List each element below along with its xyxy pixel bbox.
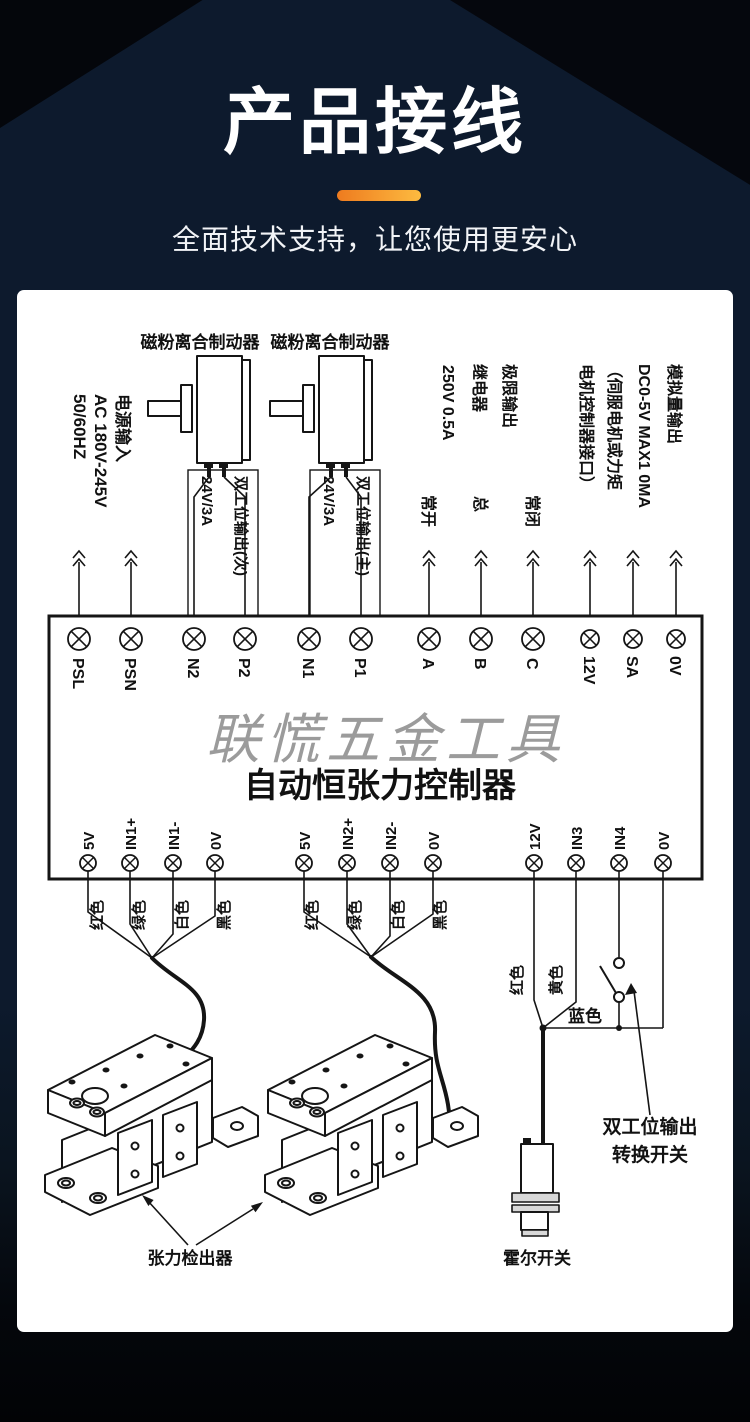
bottom-terminal-0v-1: 0V [208, 832, 225, 850]
controller-title: 自动恒张力控制器 [244, 767, 517, 805]
dual-output-primary-line1: 双工位输出(主) [354, 476, 372, 576]
analog-line4: 电机控制器接口） [577, 364, 596, 492]
bottom-terminal-in4: IN4 [612, 826, 629, 850]
relay-output-line3: 250V 0.5A [439, 365, 456, 441]
bottom-terminal-in2p: IN2+ [340, 818, 357, 850]
brake-label-1: 磁粉离合制动器 [141, 332, 261, 352]
bottom-terminal-0v-3: 0V [656, 832, 673, 850]
top-terminal-12v: 12V [580, 656, 597, 685]
power-input-line3: 50/60HZ [70, 394, 89, 459]
top-terminal-a: A [419, 658, 436, 670]
top-terminal-b: B [471, 658, 488, 670]
switch-label-line2: 转换开关 [612, 1143, 688, 1166]
power-input-line2: AC 180V-245V [91, 394, 110, 508]
switch-label-line1: 双工位输出 [602, 1115, 697, 1138]
title-accent-underline [337, 190, 421, 201]
hall-wire-yellow: 黄色 [547, 965, 565, 995]
bottom-terminal-12v: 12V [527, 823, 544, 850]
top-terminal-psl: PSL [69, 658, 86, 689]
power-input-line1: 电源输入 [113, 394, 133, 462]
analog-line3: （伺服电机或力矩 [605, 362, 624, 490]
dual-output-secondary-line1: 双工位输出(次) [232, 476, 250, 576]
sensor2-wire-black: 黑色 [431, 900, 449, 930]
bottom-terminal-0v-2: 0V [426, 832, 443, 850]
watermark: 联慌五金工具 [206, 710, 566, 770]
top-terminal-p2: P2 [235, 658, 252, 678]
top-terminal-psn: PSN [121, 658, 138, 691]
top-terminal-n2: N2 [184, 658, 201, 679]
contact-com: 总 [471, 496, 490, 512]
bottom-terminal-in1m: IN1- [166, 822, 183, 850]
top-terminal-0v: 0V [666, 656, 683, 676]
top-terminal-c: C [523, 658, 540, 670]
sensor1-wire-white: 白色 [173, 900, 191, 930]
sensor2-wire-white: 白色 [389, 900, 407, 930]
sensor2-wire-red: 红色 [303, 900, 321, 930]
dual-output-primary-line2: 24V/3A [320, 476, 337, 526]
page-subtitle: 全面技术支持，让您使用更安心 [0, 218, 750, 258]
top-terminal-p1: P1 [351, 658, 368, 678]
page-title: 产品接线 [0, 84, 750, 163]
hall-wire-blue: 蓝色 [568, 1006, 602, 1026]
bottom-terminal-5v-2: 5V [297, 832, 314, 850]
analog-line1: 模拟量输出 [665, 364, 684, 444]
contact-nc: 常闭 [523, 495, 542, 527]
bottom-terminal-5v-1: 5V [81, 832, 98, 850]
wiring-diagram: 磁粉离合制动器 磁粉离合制动器 电源输入 AC 180V-245V 50/60H… [0, 290, 750, 1332]
sensor1-wire-green: 绿色 [130, 900, 148, 930]
sensor2-wire-green: 绿色 [346, 900, 364, 930]
sensor1-wire-red: 红色 [88, 900, 106, 930]
hall-switch-label: 霍尔开关 [503, 1248, 571, 1268]
dual-output-secondary-line2: 24V/3A [198, 476, 215, 526]
bottom-terminal-in1p: IN1+ [123, 818, 140, 850]
hall-wire-red: 红色 [508, 965, 526, 995]
tension-detector-label: 张力检出器 [148, 1248, 234, 1268]
top-terminal-n1: N1 [299, 658, 316, 679]
analog-line2: DC0-5V MAX1 0MA [635, 364, 652, 508]
bottom-terminal-in3: IN3 [569, 827, 586, 850]
brake-label-2: 磁粉离合制动器 [271, 332, 391, 352]
sensor1-wire-black: 黑色 [215, 900, 233, 930]
relay-output-line2: 继电器 [470, 364, 489, 413]
top-terminal-sa: SA [623, 656, 640, 679]
contact-no: 常开 [419, 495, 438, 527]
bottom-terminal-in2m: IN2- [383, 822, 400, 850]
relay-output-line1: 极限输出 [500, 364, 519, 428]
